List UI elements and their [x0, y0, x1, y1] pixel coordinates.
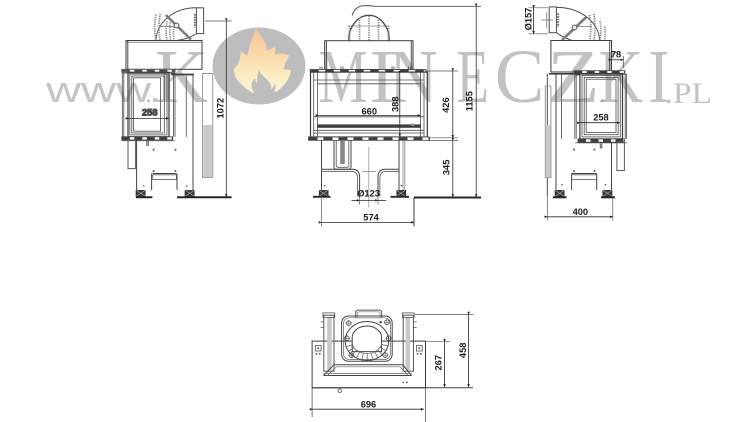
svg-text:K: K [155, 35, 208, 119]
svg-text:258: 258 [142, 108, 158, 118]
svg-text:258: 258 [593, 112, 609, 122]
svg-text:574: 574 [363, 213, 379, 223]
svg-text:267: 267 [434, 355, 444, 371]
svg-text:K: K [599, 34, 644, 119]
svg-text:Ø157: Ø157 [523, 8, 533, 31]
svg-text:1155: 1155 [465, 91, 475, 111]
svg-text:426: 426 [441, 97, 451, 113]
svg-text:660: 660 [362, 107, 378, 117]
svg-text:C: C [495, 35, 545, 119]
svg-text:www.: www. [45, 69, 162, 110]
svg-text:1072: 1072 [216, 98, 226, 119]
svg-text:M: M [319, 36, 368, 120]
svg-text:458: 458 [458, 343, 468, 359]
svg-text:388: 388 [391, 96, 401, 112]
svg-text:Z: Z [547, 34, 600, 119]
svg-text:345: 345 [442, 160, 452, 176]
svg-text:78: 78 [611, 50, 621, 60]
svg-text:Ø123: Ø123 [357, 188, 380, 198]
svg-text:.PL: .PL [665, 77, 713, 110]
svg-text:696: 696 [361, 399, 377, 409]
svg-text:400: 400 [573, 207, 589, 217]
